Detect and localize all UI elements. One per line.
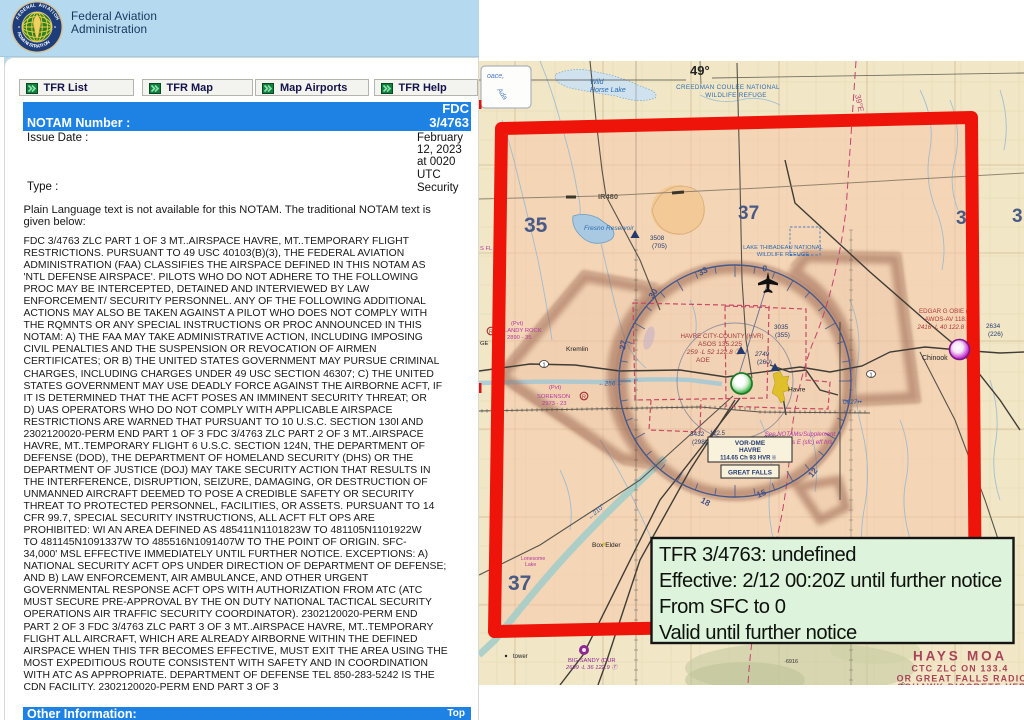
svg-text:Havre: Havre [788, 387, 806, 394]
svg-text:ASOS 135.225: ASOS 135.225 [698, 341, 742, 348]
svg-text:GE: GE [480, 341, 489, 347]
svg-text:Horse Lake: Horse Lake [590, 87, 626, 94]
svg-text:3035: 3035 [774, 324, 789, 331]
svg-text:WILDLIFE REFUGE: WILDLIFE REFUGE [757, 252, 810, 258]
svg-text:35: 35 [524, 214, 548, 237]
svg-text:2890 - 35: 2890 - 35 [507, 335, 532, 341]
svg-text:27: 27 [617, 339, 629, 350]
svg-text:2699 ·L 36 122.9 Ⓣ: 2699 ·L 36 122.9 Ⓣ [565, 664, 618, 671]
svg-text:114.65 Ch 93 HVR ⁝⁝: 114.65 Ch 93 HVR ⁝⁝ [720, 455, 776, 462]
svg-text:SQUAWK DISCRETE VFR: SQUAWK DISCRETE VFR [897, 682, 1024, 685]
svg-text:L: L [33, 3, 36, 8]
svg-text:3: 3 [1012, 206, 1023, 227]
svg-text:HAYS MOA: HAYS MOA [913, 649, 1007, 664]
svg-text:EDGAR G OBIE (S: EDGAR G OBIE (S [919, 308, 972, 315]
svg-text:Chinook: Chinook [922, 355, 948, 362]
svg-text:259 ·L 52 122.8 Ⓣ: 259 ·L 52 122.8 Ⓣ [686, 348, 743, 356]
svg-text:TFR 3/4763: undefined: TFR 3/4763: undefined [659, 544, 856, 566]
svg-text:S FL: S FL [480, 246, 493, 252]
svg-text:VOR-DME: VOR-DME [735, 440, 766, 447]
svg-text:Effective: 2/12 00:20Z until f: Effective: 2/12 00:20Z until further not… [659, 570, 1002, 592]
svg-text:tower: tower [513, 654, 528, 660]
svg-text:IR480: IR480 [598, 192, 618, 201]
svg-text:HAVRE CITY-COUNTY (HVR): HAVRE CITY-COUNTY (HVR) [680, 333, 763, 340]
svg-text:2973 - 23: 2973 - 23 [542, 401, 567, 407]
svg-text:122.5: 122.5 [710, 431, 726, 437]
svg-text:CTC ZLC ON 133.4: CTC ZLC ON 133.4 [912, 664, 1009, 674]
svg-text:←256→: ←256→ [598, 381, 622, 388]
svg-text:Fresno Reservoir: Fresno Reservoir [584, 225, 635, 232]
svg-text:(705): (705) [652, 243, 667, 250]
svg-text:1: 1 [543, 363, 546, 369]
svg-text:(Pvt): (Pvt) [549, 385, 561, 391]
svg-text:GREAT FALLS: GREAT FALLS [728, 470, 773, 477]
svg-text:3: 3 [956, 208, 967, 229]
svg-text:Box Elder: Box Elder [592, 542, 621, 549]
svg-text:LANDY ROCK: LANDY ROCK [504, 328, 542, 334]
svg-text:oace,: oace, [487, 73, 504, 80]
svg-text:Kremlin: Kremlin [566, 346, 589, 353]
svg-text:0627••: 0627•• [843, 399, 862, 406]
svg-text:BIG SANDY (DUR: BIG SANDY (DUR [568, 658, 616, 664]
svg-text:(226): (226) [988, 331, 1003, 338]
svg-text:Wild: Wild [590, 79, 605, 86]
svg-text:1: 1 [870, 373, 873, 379]
svg-text:(355): (355) [775, 332, 790, 339]
svg-text:R: R [582, 395, 586, 401]
svg-text:SORENSON: SORENSON [537, 394, 570, 400]
svg-text:(Pvt): (Pvt) [511, 321, 523, 327]
svg-text:From SFC to 0: From SFC to 0 [659, 596, 786, 618]
svg-text:2416 ·L 40 122.8 Ⓣ: 2416 ·L 40 122.8 Ⓣ [916, 323, 972, 331]
svg-text:AWOS-AV 118.3: AWOS-AV 118.3 [925, 316, 971, 323]
svg-text:CREEDMAN COULEE NATIONAL: CREEDMAN COULEE NATIONAL [676, 84, 780, 91]
svg-text:AOE: AOE [696, 357, 711, 364]
svg-text:Valid until further notice: Valid until further notice [659, 622, 857, 644]
svg-text:2634: 2634 [986, 323, 1001, 330]
svg-text:2749: 2749 [754, 351, 770, 358]
svg-text:(298): (298) [692, 439, 707, 446]
svg-text:3432: 3432 [690, 431, 705, 438]
svg-text:49°: 49° [690, 63, 710, 78]
svg-text:Lake: Lake [525, 562, 536, 568]
svg-text:WILDLIFE REFUGE: WILDLIFE REFUGE [705, 92, 767, 99]
svg-text:37: 37 [508, 572, 531, 595]
svg-text:3508: 3508 [650, 235, 665, 242]
svg-text:·6916: ·6916 [784, 659, 798, 665]
svg-text:(260): (260) [757, 359, 772, 366]
svg-text:LAKE THIBADEAU NATIONAL: LAKE THIBADEAU NATIONAL [743, 245, 823, 251]
svg-text:HAVRE: HAVRE [739, 447, 762, 454]
svg-text:37: 37 [738, 203, 759, 224]
